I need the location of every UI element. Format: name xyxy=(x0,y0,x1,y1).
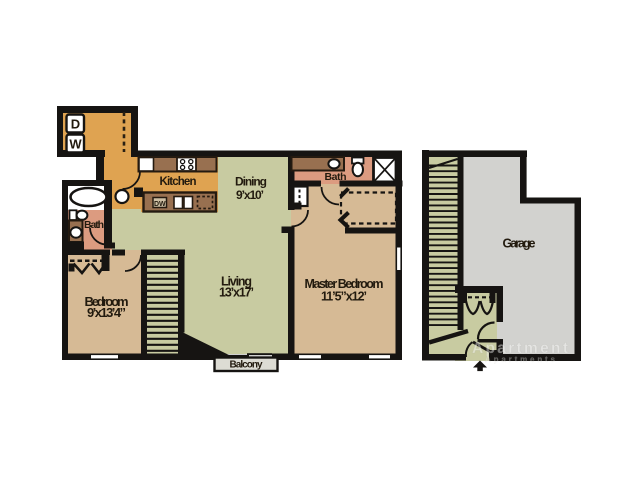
svg-text:Dining: Dining xyxy=(235,175,267,189)
svg-text:13’x17’: 13’x17’ xyxy=(219,286,254,300)
svg-text:Bath: Bath xyxy=(84,219,104,231)
svg-text:Apartments: Apartments xyxy=(485,355,556,364)
svg-text:11’5”x12’: 11’5”x12’ xyxy=(321,290,367,304)
svg-text:D: D xyxy=(71,117,80,132)
svg-text:Garage: Garage xyxy=(503,237,536,251)
svg-text:9’x13’4”: 9’x13’4” xyxy=(87,305,126,320)
svg-text:9’x10’: 9’x10’ xyxy=(236,188,264,202)
svg-text:Balcony: Balcony xyxy=(230,360,263,371)
svg-text:DW: DW xyxy=(154,201,166,208)
svg-text:W: W xyxy=(69,137,82,152)
svg-text:Kitchen: Kitchen xyxy=(160,176,197,188)
